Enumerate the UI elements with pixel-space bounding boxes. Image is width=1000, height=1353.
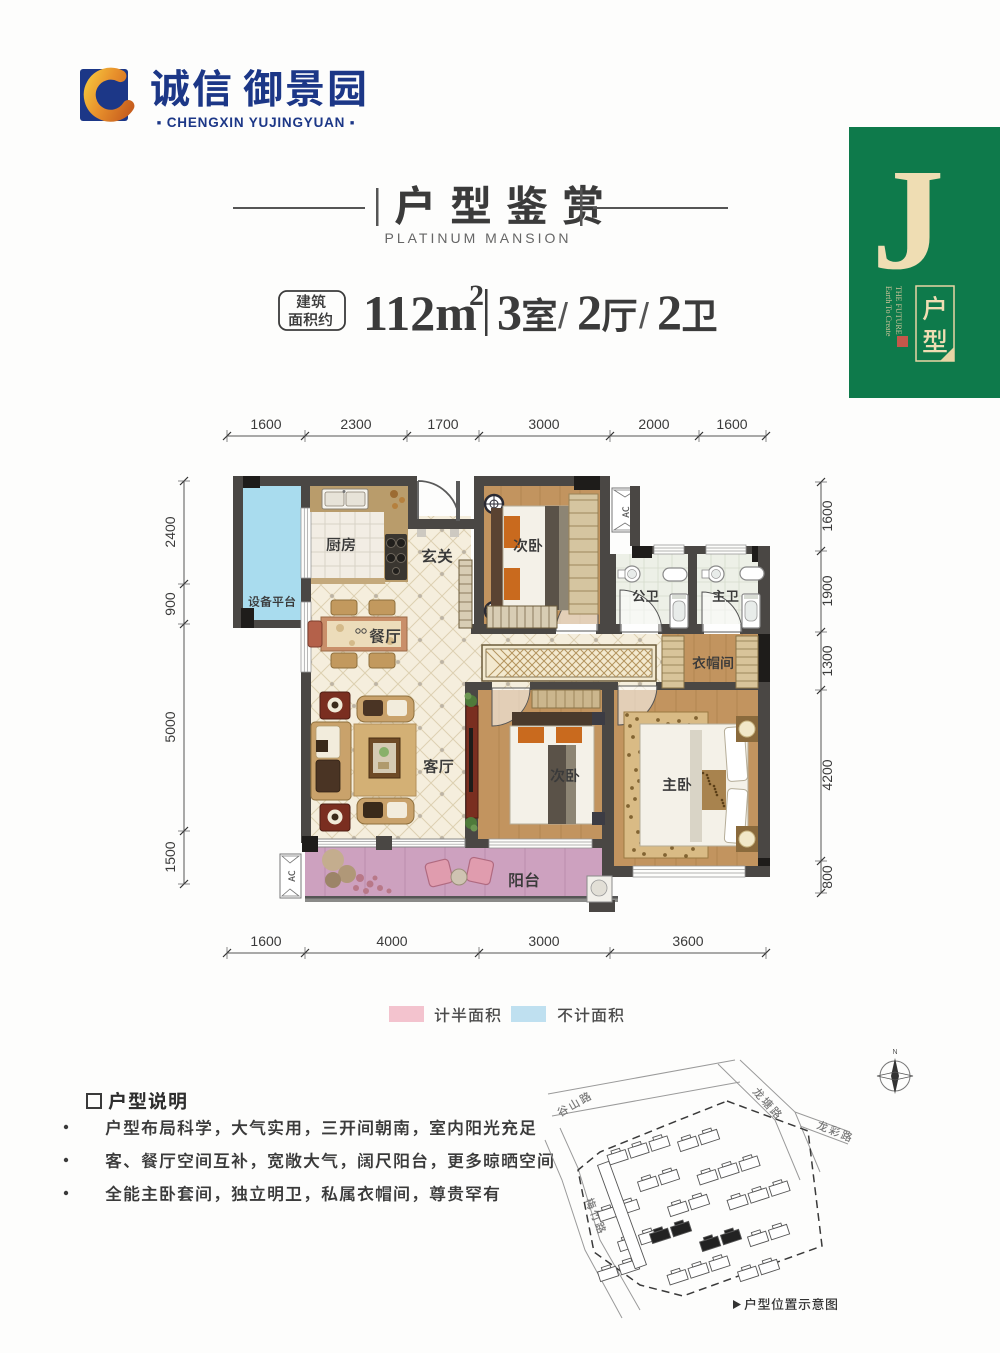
svg-text:1600: 1600	[250, 416, 281, 432]
svg-text:4200: 4200	[819, 759, 835, 790]
svg-text:1900: 1900	[819, 575, 835, 606]
svg-text:5000: 5000	[162, 711, 178, 742]
svg-text:4000: 4000	[376, 933, 407, 949]
svg-text:3: 3	[497, 284, 522, 340]
svg-text:1700: 1700	[427, 416, 458, 432]
svg-text:THE FUTURE: THE FUTURE	[894, 286, 903, 335]
svg-text:1500: 1500	[162, 841, 178, 872]
svg-text:2: 2	[577, 284, 602, 340]
svg-text:PLATINUM MANSION: PLATINUM MANSION	[385, 230, 572, 246]
svg-text:Earth To Create: Earth To Create	[884, 286, 893, 337]
svg-text:2: 2	[657, 284, 682, 340]
svg-text:2: 2	[469, 279, 484, 312]
svg-text:2400: 2400	[162, 516, 178, 547]
svg-text:1300: 1300	[819, 645, 835, 676]
svg-text:/: /	[558, 295, 568, 336]
svg-text:900: 900	[162, 592, 178, 616]
svg-text:112m: 112m	[363, 285, 477, 341]
svg-text:800: 800	[819, 865, 835, 889]
svg-text:1600: 1600	[250, 933, 281, 949]
svg-text:3000: 3000	[528, 416, 559, 432]
svg-text:3000: 3000	[528, 933, 559, 949]
svg-text:/: /	[639, 295, 649, 336]
svg-text:1600: 1600	[716, 416, 747, 432]
svg-text:J: J	[872, 140, 945, 300]
svg-text:2300: 2300	[340, 416, 371, 432]
svg-text:1600: 1600	[819, 500, 835, 531]
svg-text:N: N	[892, 1049, 897, 1056]
svg-text:▪ CHENGXIN YUJINGYUAN ▪: ▪ CHENGXIN YUJINGYUAN ▪	[157, 115, 356, 130]
svg-text:2000: 2000	[638, 416, 669, 432]
svg-text:3600: 3600	[672, 933, 703, 949]
